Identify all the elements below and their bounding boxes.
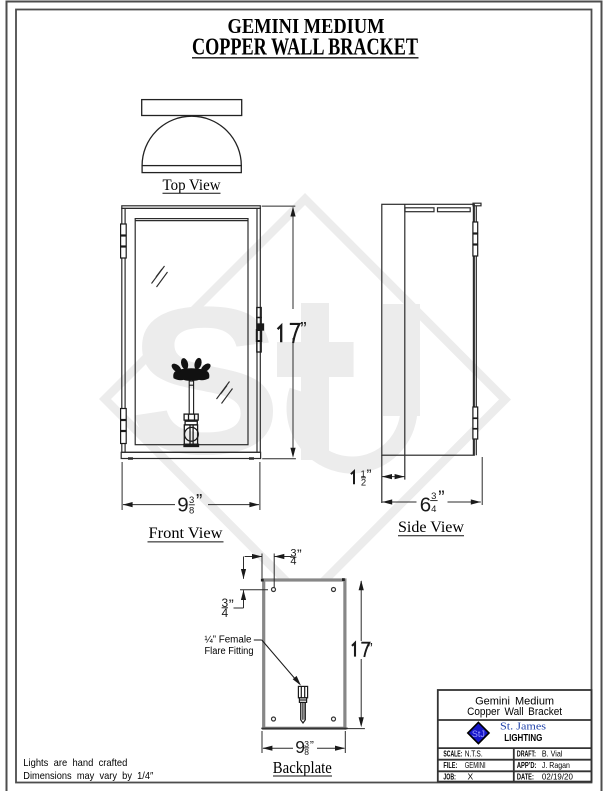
svg-text:”: ” [438, 488, 444, 509]
svg-text:6: 6 [420, 493, 431, 516]
svg-text:”: ” [196, 492, 202, 513]
svg-text:FILE:: FILE: [443, 761, 457, 770]
svg-text:Front View: Front View [149, 525, 224, 542]
svg-text:Dimensions may vary by 1/4″: Dimensions may vary by 1/4″ [23, 770, 153, 782]
svg-text:Flare Fitting: Flare Fitting [205, 646, 254, 657]
svg-text:Top View: Top View [163, 177, 222, 194]
svg-text:¼” Female: ¼” Female [205, 633, 252, 645]
svg-text:StJ: StJ [472, 729, 485, 739]
svg-text:APP’D:: APP’D: [517, 761, 537, 770]
svg-text:J. Ragan: J. Ragan [542, 760, 570, 770]
svg-text:SCALE:: SCALE: [443, 750, 462, 759]
svg-text:COPPER WALL BRACKET: COPPER WALL BRACKET [192, 35, 418, 61]
svg-text:N.T.S.: N.T.S. [465, 749, 483, 759]
svg-text:”: ” [367, 466, 372, 483]
svg-text:2: 2 [361, 477, 366, 488]
svg-text:Side View: Side View [398, 519, 465, 536]
svg-text:9: 9 [177, 493, 188, 516]
svg-text:4: 4 [431, 504, 436, 515]
svg-text:LIGHTING: LIGHTING [504, 733, 542, 744]
svg-text:02/19/20: 02/19/20 [542, 771, 573, 781]
svg-text:”: ” [368, 640, 373, 657]
svg-text:B. Vial: B. Vial [542, 749, 563, 759]
svg-text:”: ” [310, 738, 314, 752]
svg-text:X: X [468, 771, 474, 781]
svg-text:S: S [128, 263, 282, 498]
svg-text:3: 3 [189, 495, 194, 506]
svg-text:Lights are hand crafted: Lights are hand crafted [23, 757, 127, 769]
svg-text:DATE:: DATE: [517, 772, 534, 781]
svg-text:GEMINI: GEMINI [465, 760, 486, 770]
svg-text:Backplate: Backplate [273, 758, 332, 777]
svg-text:St. James: St. James [500, 721, 546, 733]
svg-text:DRAFT:: DRAFT: [517, 750, 536, 759]
svg-text:”: ” [297, 546, 302, 562]
svg-text:JOB:: JOB: [443, 772, 456, 781]
svg-text:”: ” [229, 597, 234, 614]
svg-text:Copper Wall Bracket: Copper Wall Bracket [467, 706, 562, 718]
svg-text:”: ” [300, 320, 306, 341]
svg-text:8: 8 [189, 506, 194, 517]
